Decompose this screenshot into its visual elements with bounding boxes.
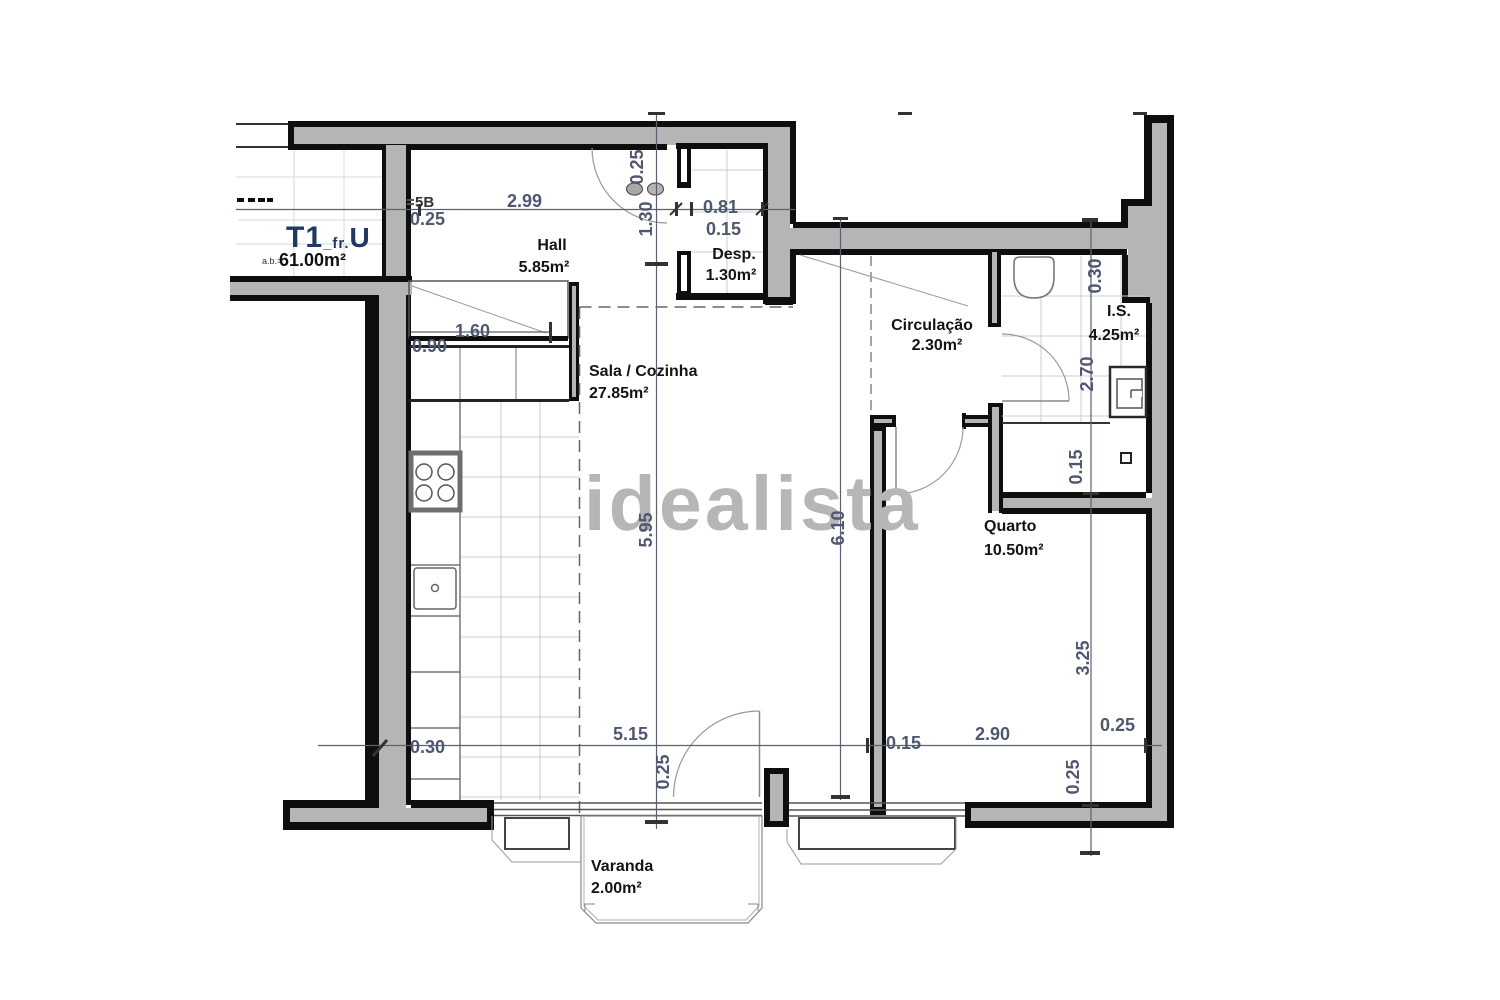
svg-text:2.99: 2.99 <box>507 191 542 211</box>
svg-text:0.30: 0.30 <box>1085 258 1105 293</box>
svg-text:5.15: 5.15 <box>613 724 648 744</box>
svg-text:0.15: 0.15 <box>886 733 921 753</box>
svg-text:2.30m²: 2.30m² <box>912 337 963 354</box>
svg-text:61.00m²: 61.00m² <box>279 250 346 270</box>
svg-text:5.85m²: 5.85m² <box>519 259 570 276</box>
svg-text:Varanda: Varanda <box>591 858 653 875</box>
svg-text:2.70: 2.70 <box>1077 356 1097 391</box>
svg-text:4.25m²: 4.25m² <box>1089 327 1140 344</box>
svg-text:0.25: 0.25 <box>627 149 647 184</box>
svg-text:Desp.: Desp. <box>712 246 756 263</box>
svg-text:0.25: 0.25 <box>653 754 673 789</box>
svg-text:5.95: 5.95 <box>636 512 656 547</box>
svg-text:1.60: 1.60 <box>455 321 490 341</box>
svg-text:Circulação: Circulação <box>891 317 973 334</box>
svg-text:0.15: 0.15 <box>706 219 741 239</box>
svg-text:I.S.: I.S. <box>1107 303 1131 320</box>
svg-text:Hall: Hall <box>537 237 566 254</box>
svg-text:Sala / Cozinha: Sala / Cozinha <box>589 363 698 380</box>
svg-text:Quarto: Quarto <box>984 518 1037 535</box>
svg-text:27.85m²: 27.85m² <box>589 385 649 402</box>
svg-text:0.15: 0.15 <box>1066 449 1086 484</box>
svg-text:1.30: 1.30 <box>636 201 656 236</box>
svg-text:0.25: 0.25 <box>1100 715 1135 735</box>
svg-text:0.81: 0.81 <box>703 197 738 217</box>
svg-text:2.00m²: 2.00m² <box>591 880 642 897</box>
svg-text:0.30: 0.30 <box>410 737 445 757</box>
svg-text:0.90: 0.90 <box>412 336 447 356</box>
svg-text:1.30m²: 1.30m² <box>706 267 757 284</box>
svg-text:idealista: idealista <box>584 461 921 547</box>
svg-text:0.25: 0.25 <box>1063 759 1083 794</box>
svg-text:10.50m²: 10.50m² <box>984 542 1044 559</box>
svg-text:0.25: 0.25 <box>410 209 445 229</box>
svg-text:6.10: 6.10 <box>828 510 848 545</box>
svg-text:5B: 5B <box>415 194 434 211</box>
svg-text:2.90: 2.90 <box>975 724 1010 744</box>
svg-text:3.25: 3.25 <box>1073 640 1093 675</box>
